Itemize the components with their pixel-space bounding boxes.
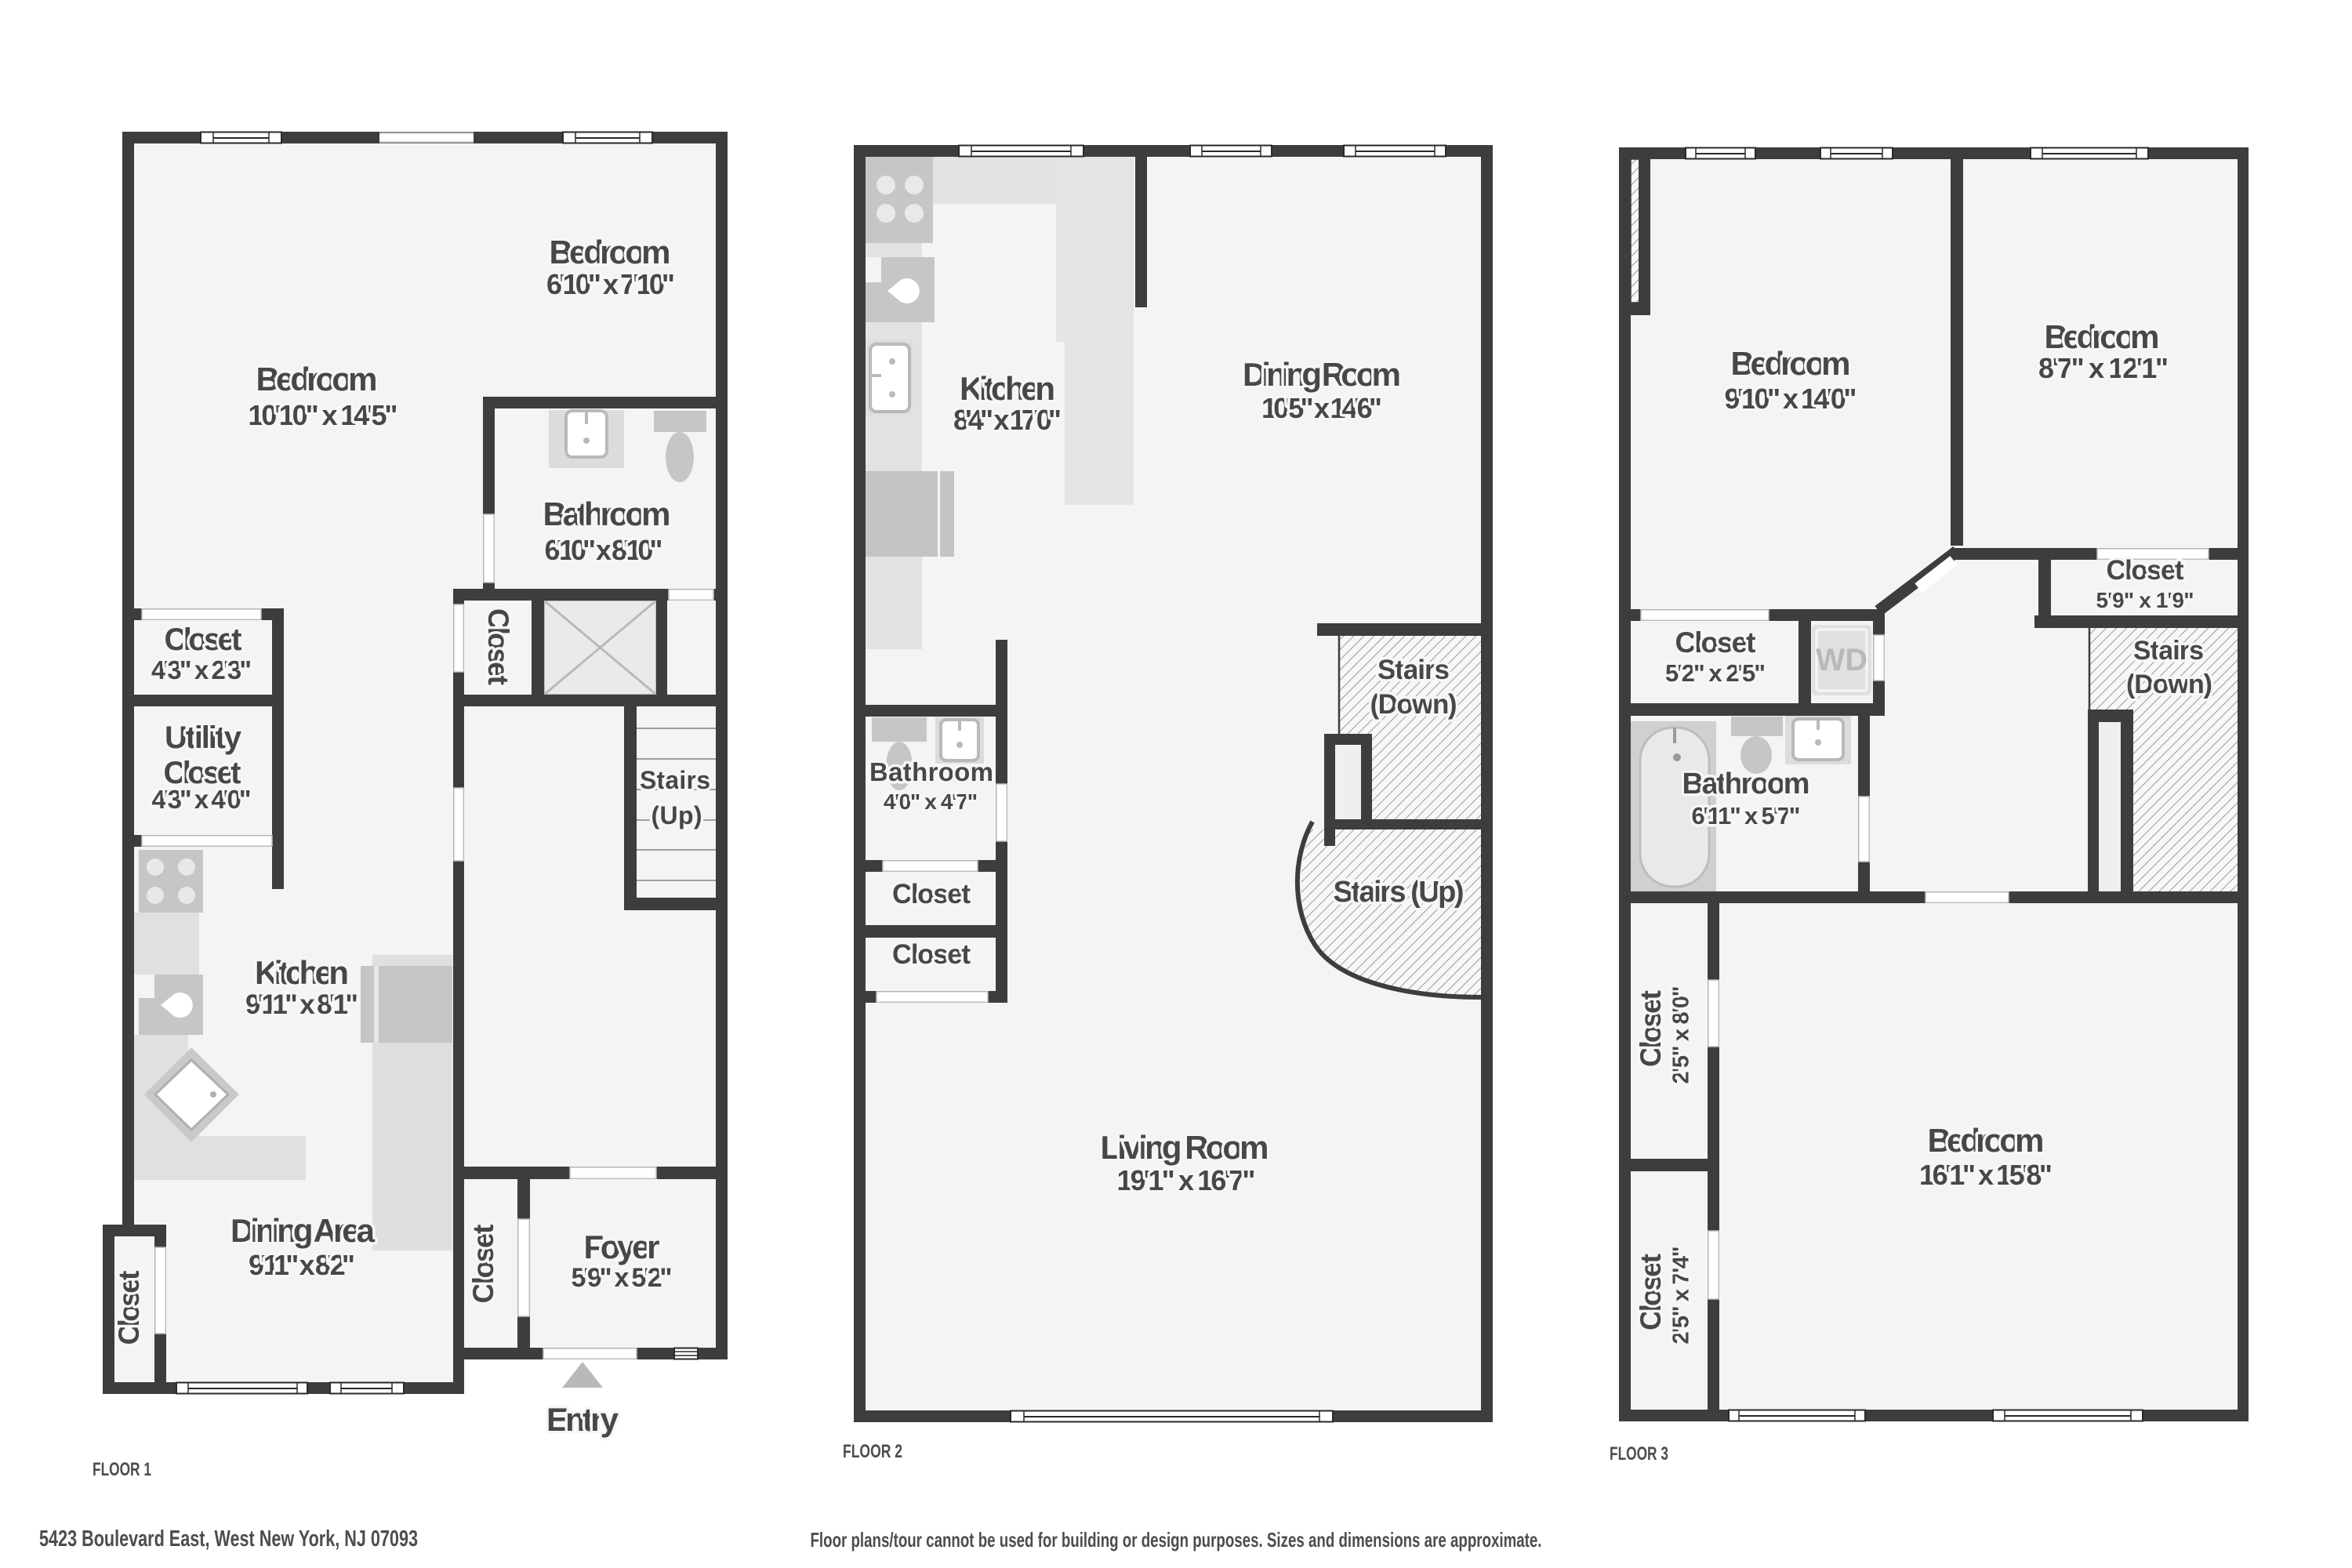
svg-text:Closet: Closet (892, 879, 971, 909)
svg-text:WD: WD (1816, 643, 1867, 677)
svg-text:4'3" x 2'3": 4'3" x 2'3" (151, 655, 252, 684)
svg-text:16'1" x 15'8": 16'1" x 15'8" (1919, 1159, 2053, 1191)
svg-text:10'5" x 14'6": 10'5" x 14'6" (1261, 392, 1382, 424)
svg-text:Living Room: Living Room (1101, 1129, 1269, 1166)
svg-text:(Down): (Down) (2126, 670, 2212, 699)
svg-text:Bedroom: Bedroom (1731, 345, 1851, 382)
svg-text:19'1" x 16'7": 19'1" x 16'7" (1117, 1164, 1256, 1196)
svg-text:4'3" x 4'0": 4'3" x 4'0" (152, 785, 252, 814)
svg-text:8'7" x 12'1": 8'7" x 12'1" (2038, 352, 2169, 384)
svg-text:Closet: Closet (1635, 990, 1667, 1067)
svg-text:Foyer: Foyer (584, 1229, 660, 1265)
svg-text:Stairs: Stairs (640, 766, 710, 794)
svg-text:6'11" x 5'7": 6'11" x 5'7" (1692, 802, 1801, 829)
svg-text:2'5" x 7'4": 2'5" x 7'4" (1669, 1247, 1694, 1345)
svg-text:5'2" x 2'5": 5'2" x 2'5" (1665, 659, 1766, 687)
svg-text:Bathroom: Bathroom (543, 495, 671, 532)
svg-text:Bathroom: Bathroom (1682, 768, 1810, 800)
svg-text:9'11" x 8'2": 9'11" x 8'2" (249, 1249, 355, 1281)
svg-text:Closet: Closet (113, 1271, 145, 1345)
svg-text:2'5" x 8'0": 2'5" x 8'0" (1669, 986, 1694, 1084)
svg-text:Utility: Utility (165, 720, 242, 755)
svg-text:10'10" x 14'5": 10'10" x 14'5" (249, 399, 398, 431)
svg-text:Closet: Closet (482, 608, 514, 685)
svg-text:Kitchen: Kitchen (960, 370, 1055, 407)
svg-text:FLOOR 3: FLOOR 3 (1610, 1443, 1668, 1465)
svg-text:(Down): (Down) (1370, 689, 1457, 720)
svg-text:(Up): (Up) (652, 801, 702, 829)
svg-text:5423 Boulevard East, West New: 5423 Boulevard East, West New York, NJ 0… (39, 1526, 418, 1552)
svg-text:Kitchen: Kitchen (255, 954, 349, 991)
svg-text:Closet: Closet (467, 1225, 499, 1304)
svg-text:Closet: Closet (892, 939, 971, 970)
svg-text:9'11" x 8'1": 9'11" x 8'1" (245, 989, 358, 1020)
svg-text:Stairs: Stairs (1377, 655, 1450, 685)
svg-text:Closet: Closet (1675, 626, 1756, 659)
svg-text:Stairs (Up): Stairs (Up) (1334, 876, 1465, 909)
svg-text:Bathroom: Bathroom (869, 757, 993, 786)
svg-text:8'4" x 17'0": 8'4" x 17'0" (953, 404, 1062, 436)
svg-text:FLOOR 2: FLOOR 2 (843, 1441, 902, 1462)
svg-text:Bedroom: Bedroom (256, 361, 378, 397)
svg-text:Bedroom: Bedroom (550, 234, 671, 270)
svg-text:Entry: Entry (546, 1401, 619, 1438)
svg-text:9'10" x 14'0": 9'10" x 14'0" (1725, 383, 1857, 415)
svg-text:4'0" x 4'7": 4'0" x 4'7" (884, 789, 978, 814)
svg-text:FLOOR 1: FLOOR 1 (93, 1459, 151, 1480)
svg-text:Closet: Closet (165, 622, 242, 657)
svg-text:6'10" x 7'10": 6'10" x 7'10" (546, 268, 675, 300)
svg-text:Bedroom: Bedroom (2045, 318, 2160, 355)
svg-text:Stairs: Stairs (2133, 636, 2204, 666)
svg-text:Bedroom: Bedroom (1928, 1122, 2045, 1159)
svg-text:5'9" x 1'9": 5'9" x 1'9" (2096, 588, 2194, 612)
svg-text:Dining Room: Dining Room (1243, 356, 1401, 393)
svg-text:6'10" x 8'10": 6'10" x 8'10" (545, 534, 663, 566)
svg-text:Floor plans/tour cannot be use: Floor plans/tour cannot be used for buil… (811, 1528, 1542, 1552)
svg-text:Closet: Closet (1635, 1254, 1667, 1330)
svg-text:5'9" x 5'2": 5'9" x 5'2" (572, 1263, 673, 1293)
svg-text:Dining Area: Dining Area (230, 1212, 376, 1249)
svg-text:Closet: Closet (2107, 555, 2184, 586)
